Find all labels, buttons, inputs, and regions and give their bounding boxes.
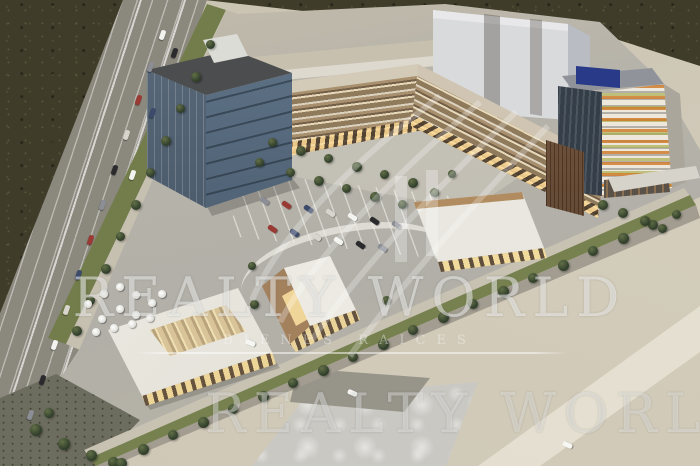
palm-tree: [116, 232, 125, 241]
palm-tree: [30, 424, 42, 436]
watermark-brand-text-tiled: REALTY WORLD: [205, 382, 700, 445]
palm-tree: [588, 246, 598, 256]
palm-tree: [370, 192, 380, 202]
palm-tree: [44, 408, 54, 418]
palm-tree: [398, 200, 407, 209]
palm-tree: [324, 154, 333, 163]
palm-tree: [255, 158, 264, 167]
palm-tree: [448, 170, 456, 178]
palm-tree: [116, 458, 127, 466]
watermark-brand-text: REALTY WORLD: [73, 266, 628, 329]
palm-tree: [672, 210, 681, 219]
palm-tree: [268, 138, 277, 147]
palm-tree: [314, 176, 324, 186]
palm-tree: [598, 200, 608, 210]
palm-tree: [161, 136, 171, 146]
rendering: REALTY WORLD BIENES RAICES REALTY WORLD: [0, 0, 700, 466]
palm-tree: [286, 168, 295, 177]
palm-tree: [430, 188, 439, 197]
palm-tree: [58, 438, 70, 450]
palm-tree: [408, 178, 418, 188]
palm-tree: [318, 365, 329, 376]
palm-tree: [618, 208, 628, 218]
palm-tree: [380, 170, 389, 179]
palm-tree: [138, 444, 149, 455]
palm-tree: [131, 200, 141, 210]
watermark-divider-line: [134, 352, 568, 354]
palm-tree: [618, 233, 629, 244]
palm-tree: [206, 40, 215, 49]
palm-tree: [176, 104, 185, 113]
palm-tree: [191, 72, 201, 82]
palm-tree: [342, 184, 351, 193]
palm-tree: [168, 430, 178, 440]
palm-tree: [640, 216, 650, 226]
patio-umbrella: [92, 328, 100, 336]
palm-tree: [146, 168, 155, 177]
watermark-subtext: BIENES RAICES: [223, 333, 477, 348]
palm-tree: [86, 450, 97, 461]
palm-tree: [352, 162, 362, 172]
palm-tree: [658, 224, 667, 233]
palm-tree: [296, 146, 306, 156]
